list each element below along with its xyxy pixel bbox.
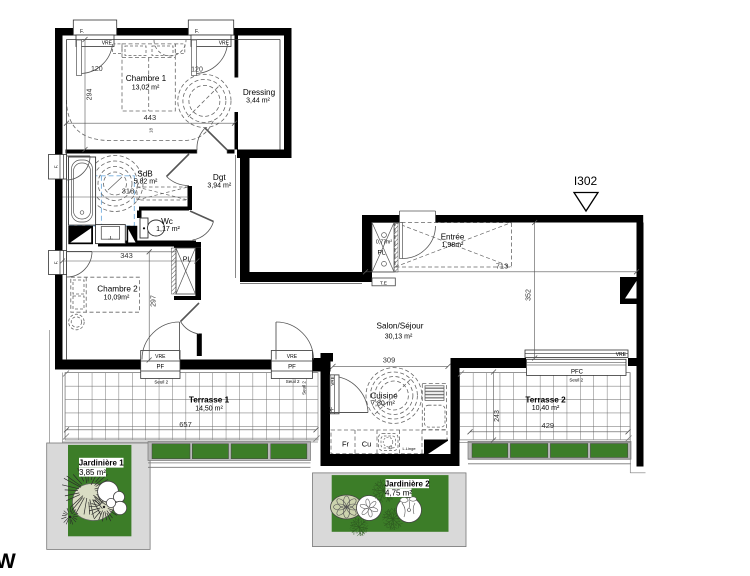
- svg-text:F.: F.: [195, 29, 199, 35]
- svg-text:120: 120: [191, 67, 203, 74]
- svg-text:VRE: VRE: [330, 376, 335, 385]
- svg-text:PFC: PFC: [571, 370, 584, 376]
- svg-text:Dressing: Dressing: [243, 88, 276, 97]
- svg-text:VRE: VRE: [219, 41, 230, 47]
- svg-text:Chambre 2: Chambre 2: [97, 285, 138, 294]
- svg-text:PF: PF: [156, 365, 164, 371]
- svg-text:5,82 m²: 5,82 m²: [134, 179, 158, 186]
- svg-text:309: 309: [383, 356, 396, 365]
- svg-text:I302: I302: [574, 174, 598, 188]
- svg-text:VRE: VRE: [102, 41, 113, 47]
- svg-text:Entrée: Entrée: [441, 233, 465, 242]
- svg-text:352: 352: [526, 289, 533, 301]
- svg-text:VRE: VRE: [616, 352, 627, 358]
- svg-text:Seuil 2: Seuil 2: [154, 380, 168, 385]
- svg-text:F.: F.: [54, 261, 59, 265]
- svg-text:F.: F.: [80, 29, 84, 35]
- svg-text:120: 120: [91, 66, 103, 73]
- svg-text:Salon/Séjour: Salon/Séjour: [377, 322, 424, 331]
- svg-text:443: 443: [144, 113, 157, 122]
- svg-text:1,98m²: 1,98m²: [442, 242, 464, 249]
- svg-text:343: 343: [120, 251, 133, 260]
- svg-text:PF: PF: [288, 365, 296, 371]
- svg-text:10,40 m²: 10,40 m²: [532, 405, 560, 412]
- svg-text:3,44 m²: 3,44 m²: [246, 97, 270, 104]
- svg-text:429: 429: [542, 421, 555, 430]
- svg-text:297: 297: [151, 295, 158, 307]
- svg-text:Wc: Wc: [161, 217, 173, 226]
- svg-text:1,17 m²: 1,17 m²: [156, 226, 180, 233]
- svg-text:18: 18: [148, 128, 153, 134]
- svg-text:Terrasse 2: Terrasse 2: [525, 396, 566, 405]
- svg-text:14,50 m²: 14,50 m²: [195, 405, 223, 412]
- svg-text:VRE: VRE: [287, 354, 298, 360]
- svg-text:Cu: Cu: [362, 440, 372, 449]
- svg-text:3,85 m²: 3,85 m²: [79, 468, 106, 477]
- svg-text:657: 657: [179, 420, 192, 429]
- svg-text:13,02 m²: 13,02 m²: [132, 84, 160, 91]
- svg-text:PL: PL: [183, 257, 192, 264]
- svg-text:243: 243: [494, 410, 501, 422]
- svg-text:Jardinière 1: Jardinière 1: [79, 459, 124, 468]
- svg-text:294: 294: [87, 89, 94, 101]
- svg-text:318: 318: [122, 187, 135, 196]
- svg-text:10,09m²: 10,09m²: [104, 295, 130, 302]
- svg-text:W: W: [0, 549, 17, 573]
- svg-text:Seuil 2: Seuil 2: [302, 381, 307, 395]
- svg-text:Chambre 1: Chambre 1: [126, 74, 167, 83]
- svg-text:VRE: VRE: [155, 354, 166, 360]
- svg-text:Jardinière 2: Jardinière 2: [385, 480, 430, 489]
- svg-text:7,80 m²: 7,80 m²: [371, 400, 395, 407]
- svg-text:PL: PL: [378, 250, 386, 257]
- svg-text:T.E: T.E: [380, 280, 387, 286]
- svg-text:30,13 m²: 30,13 m²: [385, 333, 413, 340]
- svg-text:F.: F.: [54, 165, 59, 169]
- svg-text:3,94 m²: 3,94 m²: [207, 183, 231, 190]
- svg-text:Seuil 2: Seuil 2: [569, 378, 583, 383]
- svg-text:Fr: Fr: [342, 440, 350, 449]
- svg-text:Terrasse 1: Terrasse 1: [189, 396, 230, 405]
- svg-text:Cuisine: Cuisine: [370, 392, 398, 401]
- svg-text:0,77m²: 0,77m²: [376, 240, 392, 246]
- svg-text:L.Linge: L.Linge: [402, 446, 416, 451]
- svg-text:713: 713: [496, 262, 509, 271]
- svg-text:Dgt: Dgt: [213, 173, 226, 182]
- svg-text:Seuil 2: Seuil 2: [286, 379, 300, 384]
- svg-text:SdB: SdB: [137, 170, 153, 179]
- svg-text:4,75 m²: 4,75 m²: [385, 489, 412, 498]
